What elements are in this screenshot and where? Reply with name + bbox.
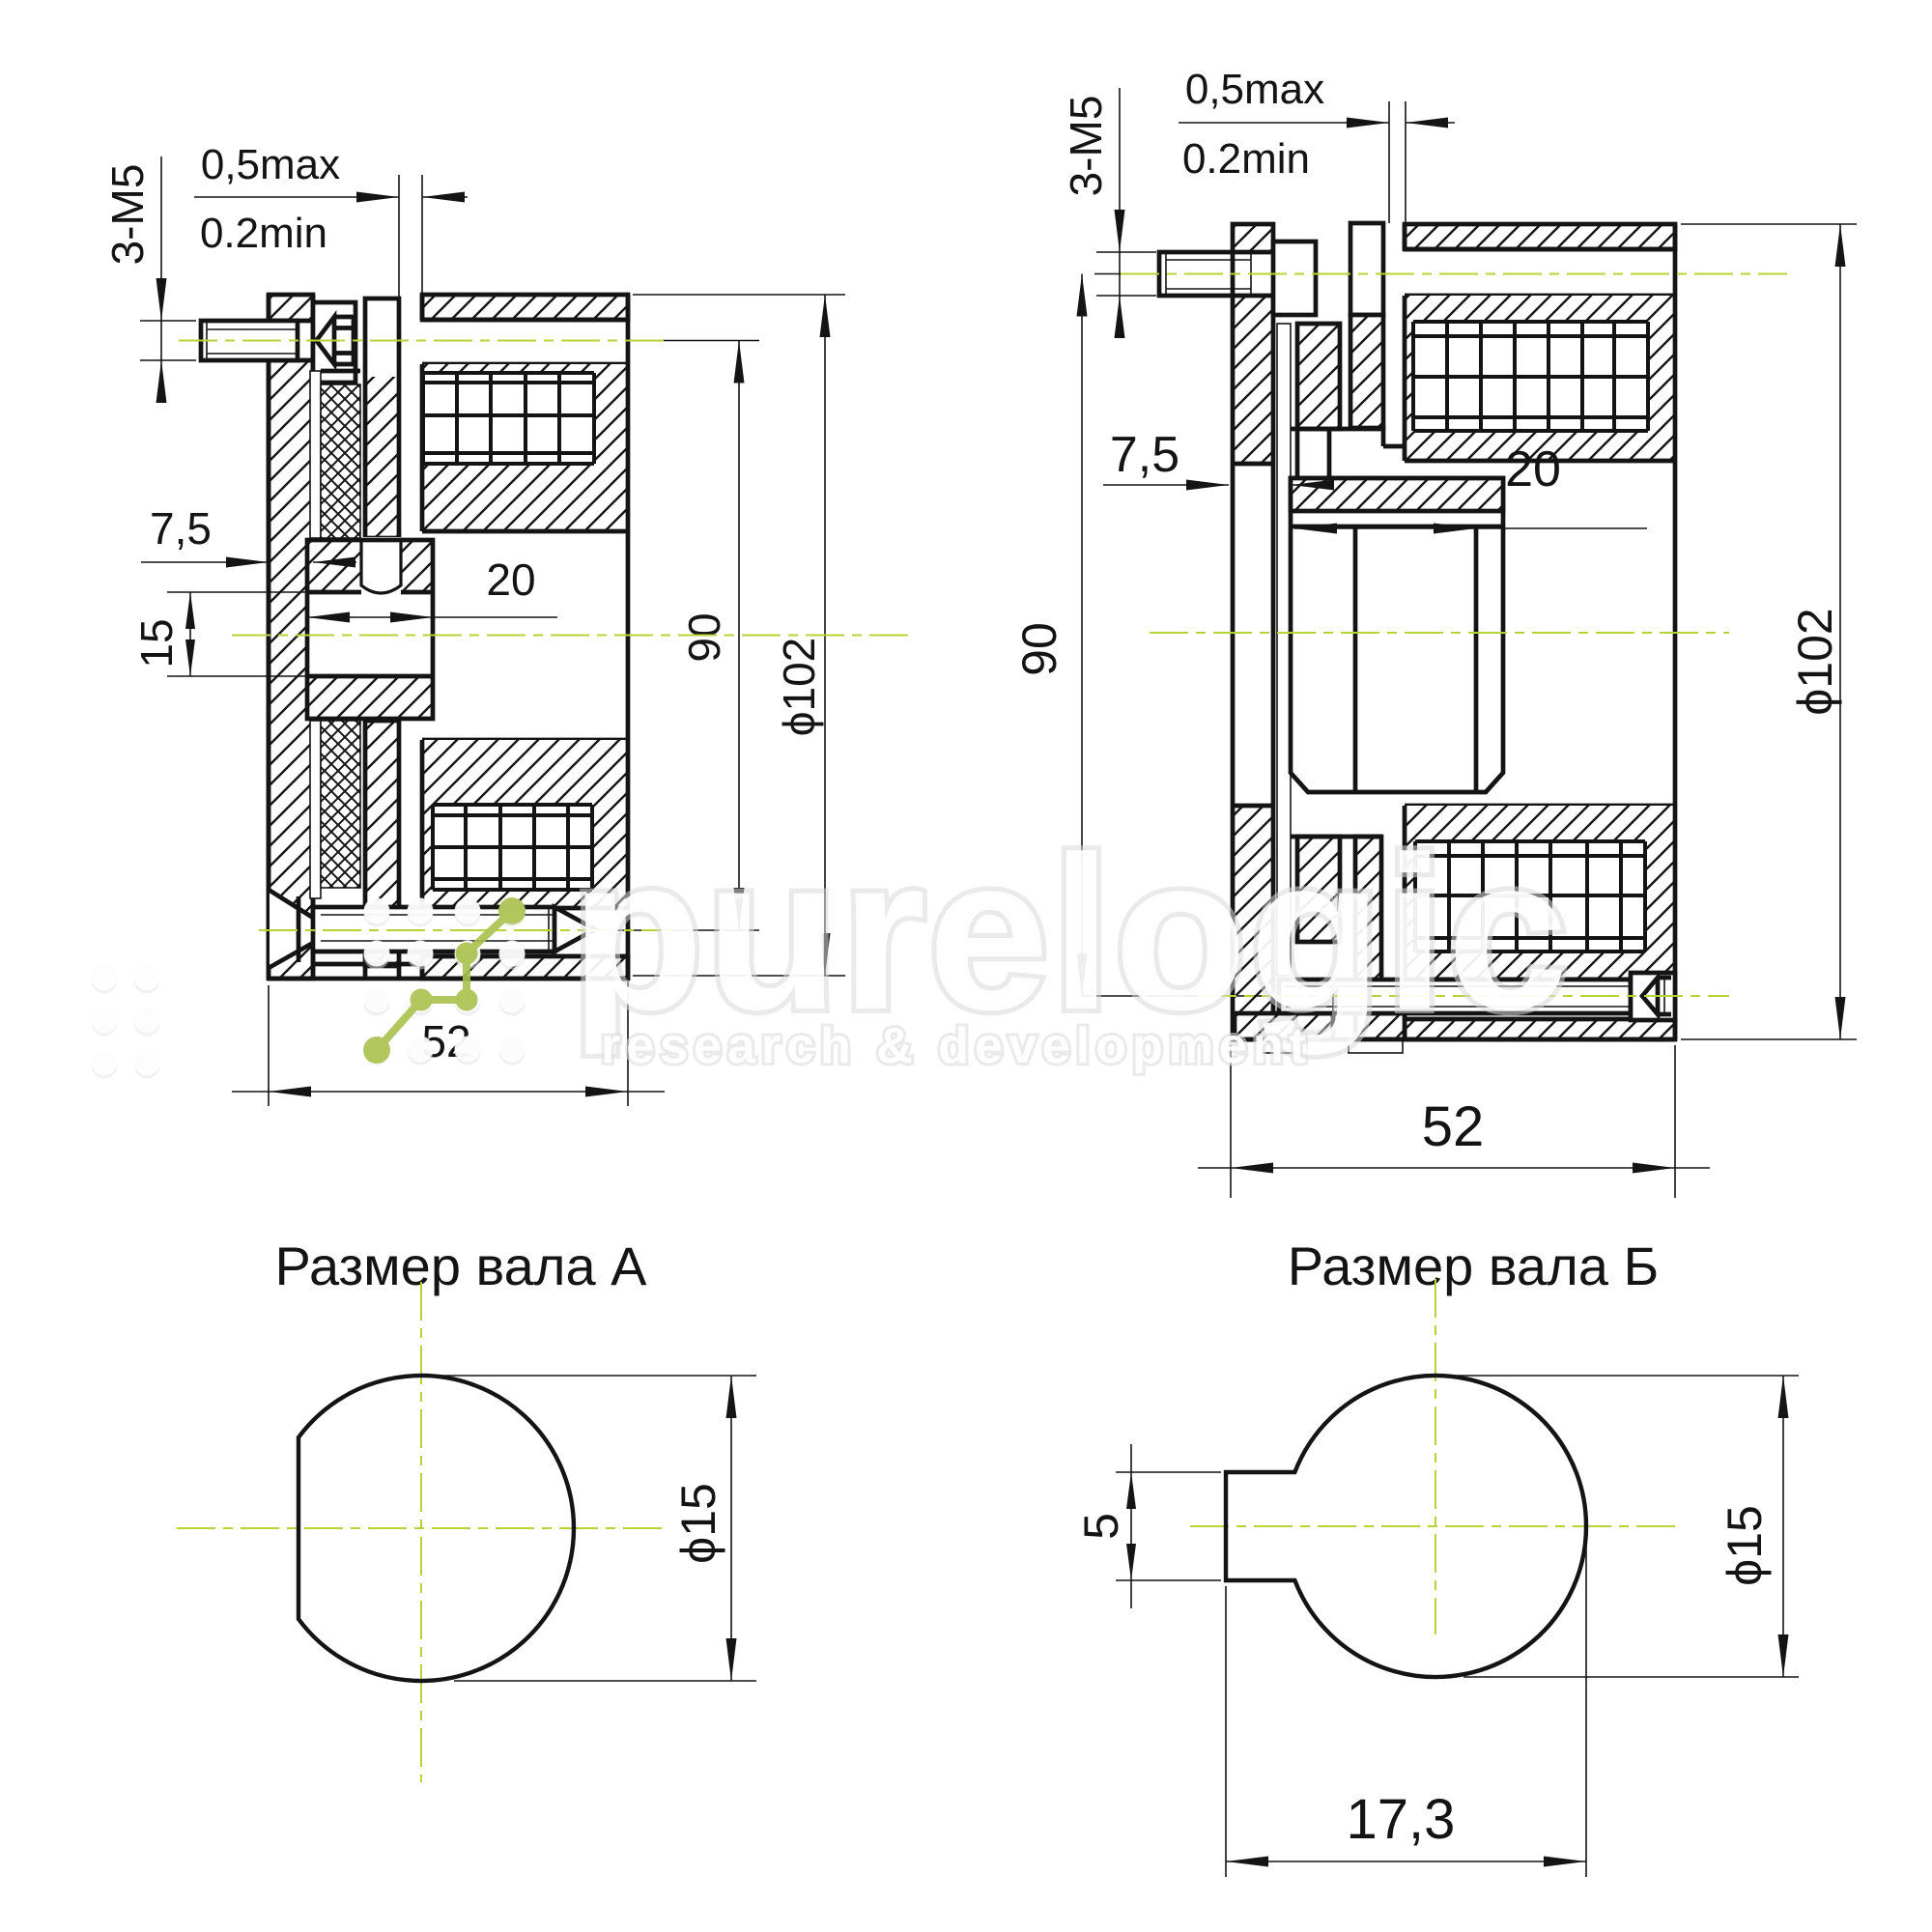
svg-text:Размер вала А: Размер вала А <box>274 1236 647 1296</box>
svg-text:20: 20 <box>1505 441 1561 497</box>
svg-text:3-М5: 3-М5 <box>102 164 153 266</box>
svg-text:17,3: 17,3 <box>1347 1788 1456 1851</box>
svg-text:90: 90 <box>679 612 729 662</box>
svg-text:52: 52 <box>1422 1095 1485 1158</box>
svg-text:20: 20 <box>486 554 535 605</box>
svg-text:research & development: research & development <box>601 1018 1312 1074</box>
svg-text:Размер вала Б: Размер вала Б <box>1288 1236 1659 1296</box>
svg-text:3-М5: 3-М5 <box>1061 96 1111 197</box>
svg-text:ϕ15: ϕ15 <box>1718 1505 1772 1586</box>
svg-text:15: 15 <box>131 618 182 668</box>
svg-text:7,5: 7,5 <box>1110 427 1179 483</box>
svg-text:ϕ15: ϕ15 <box>671 1483 725 1564</box>
svg-text:ϕ102: ϕ102 <box>774 638 824 737</box>
svg-text:7,5: 7,5 <box>150 503 212 554</box>
svg-text:0,5max: 0,5max <box>1185 66 1324 113</box>
svg-text:ϕ102: ϕ102 <box>1788 608 1842 715</box>
svg-text:5: 5 <box>1074 1513 1128 1540</box>
svg-text:0.2min: 0.2min <box>1182 135 1310 183</box>
svg-text:0.2min: 0.2min <box>200 210 327 257</box>
svg-text:90: 90 <box>1012 622 1066 676</box>
svg-text:0,5max: 0,5max <box>201 141 340 188</box>
